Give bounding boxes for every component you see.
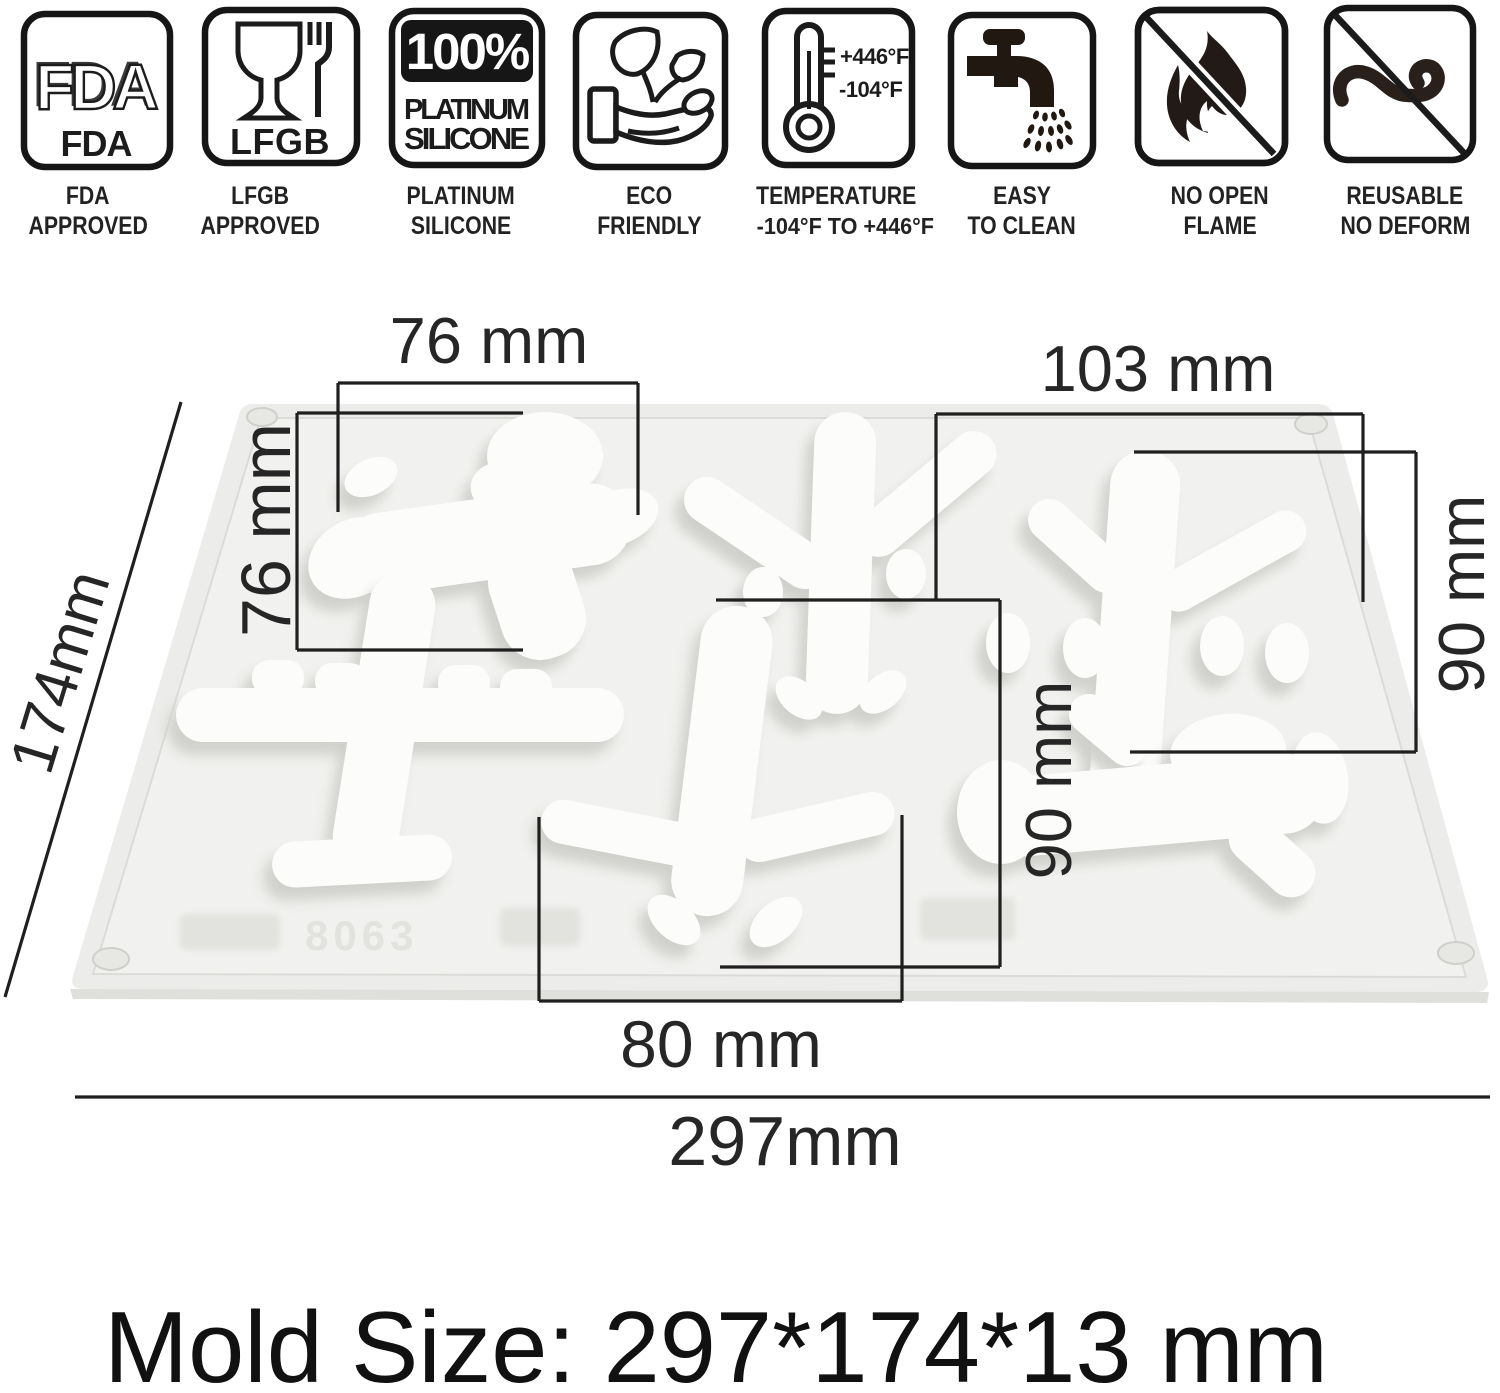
svg-text:80 mm: 80 mm bbox=[620, 1007, 822, 1081]
svg-text:76 mm: 76 mm bbox=[390, 304, 589, 377]
svg-text:76 mm: 76 mm bbox=[227, 423, 305, 637]
svg-text:174mm: 174mm bbox=[0, 563, 124, 781]
svg-text:90 mm: 90 mm bbox=[1425, 495, 1498, 694]
svg-text:8063: 8063 bbox=[305, 912, 418, 959]
svg-text:Mold Size: 297*174*13 mm: Mold Size: 297*174*13 mm bbox=[104, 1292, 1328, 1393]
svg-text:297mm: 297mm bbox=[668, 1102, 901, 1180]
svg-text:103 mm: 103 mm bbox=[1041, 332, 1276, 405]
svg-text:90 mm: 90 mm bbox=[1012, 681, 1085, 880]
